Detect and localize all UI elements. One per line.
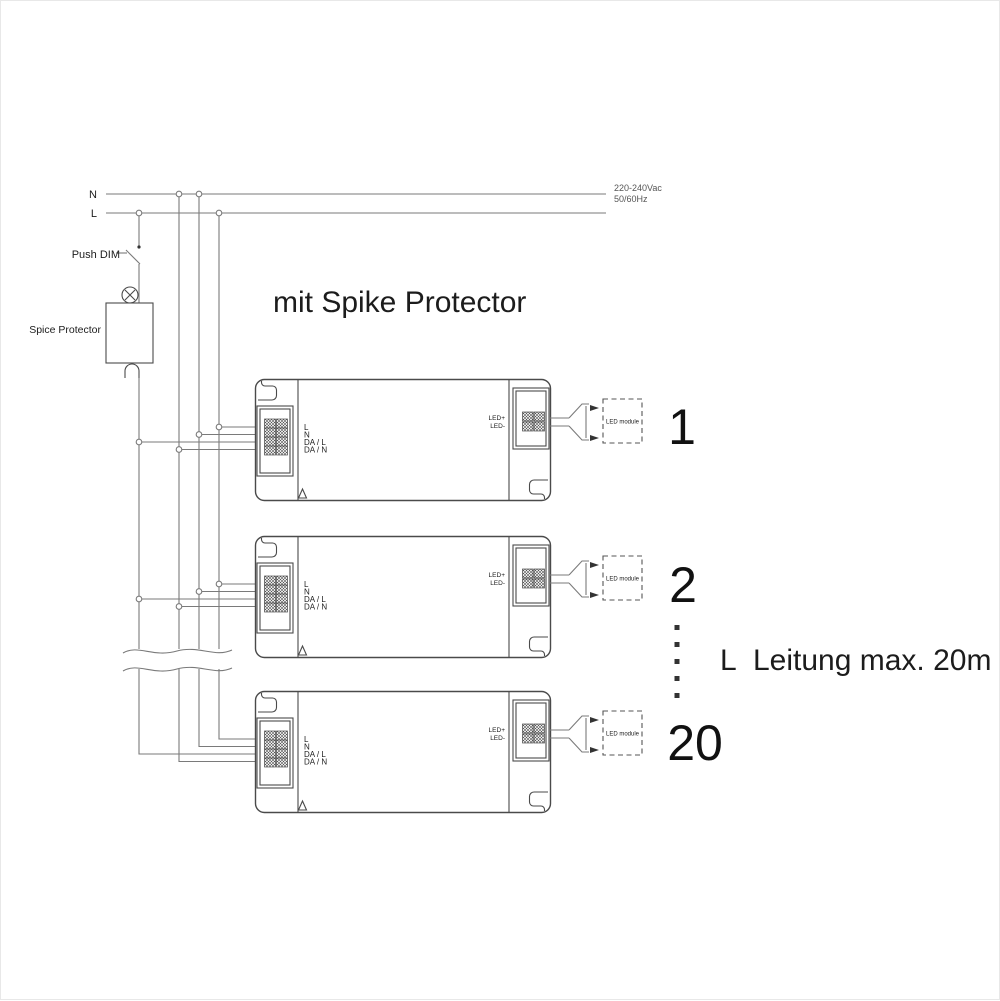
output-label-led-plus: LED+: [489, 415, 506, 422]
output-label-led-plus: LED+: [489, 727, 506, 734]
driver2-taps: [139, 584, 273, 607]
dot: [675, 693, 680, 698]
output-label-led-minus: LED-: [490, 580, 505, 587]
protector-body: [106, 303, 153, 363]
driver-count-20: 20: [667, 715, 723, 771]
junction-dot: [136, 210, 142, 216]
driver1-taps: [139, 427, 273, 450]
supply-lines: [106, 194, 606, 213]
junction-dot: [136, 439, 142, 445]
schematic-page: N L 220-240Vac 50/60Hz: [0, 0, 1000, 1000]
push-dim-label: Push DIM: [72, 249, 120, 261]
junction-dot: [136, 596, 142, 602]
output-wires: [549, 730, 569, 738]
led-driver-1: L N DA / L DA / N LED+ LED- LED module: [256, 380, 643, 501]
led-module-label: LED module: [606, 732, 640, 738]
terminal-label-dan: DA / N: [304, 757, 327, 766]
junction-dot: [176, 604, 182, 610]
protector-bottom-grommet: [125, 364, 139, 378]
output-label-led-plus: LED+: [489, 572, 506, 579]
junction-dot: [216, 424, 222, 430]
terminal-label-dan: DA / N: [304, 602, 327, 611]
cable-length-note: L Leitung max. 20m: [720, 644, 991, 677]
dot: [675, 625, 680, 630]
dot: [675, 642, 680, 647]
led-driver-3: L N DA / L DA / N LED+ LED- LED module: [256, 692, 643, 813]
module-connector: [569, 561, 589, 597]
driver-count-1: 1: [668, 399, 696, 455]
diagram-title: mit Spike Protector: [273, 286, 526, 319]
spike-protector-label: Spice Protector: [29, 324, 101, 336]
junction-dot: [216, 581, 222, 587]
led-module-label: LED module: [606, 420, 640, 426]
junction-dot: [196, 191, 202, 197]
switch-blade: [126, 250, 140, 264]
supply-frequency-label: 50/60Hz: [614, 194, 648, 204]
supply-n-label: N: [89, 189, 97, 201]
line-break-squiggle: [123, 649, 232, 671]
bus-wiring: [123, 191, 273, 761]
connector-arrow-icon: [590, 405, 599, 441]
junction-dot: [176, 191, 182, 197]
junction-dot: [176, 447, 182, 453]
supply-voltage-label: 220-240Vac: [614, 183, 662, 193]
driver-outline: [256, 692, 551, 813]
junction-dot: [216, 210, 222, 216]
push-dim-switch: Push DIM: [72, 245, 141, 264]
output-label-led-minus: LED-: [490, 735, 505, 742]
connector-arrow-icon: [590, 562, 599, 598]
module-connector: [569, 716, 589, 752]
junction-dot: [196, 589, 202, 595]
output-label-led-minus: LED-: [490, 423, 505, 430]
supply-l-label: L: [91, 208, 97, 220]
protector-terminal-cross: [125, 290, 135, 300]
terminal-label-dan: DA / N: [304, 445, 327, 454]
switch-contact-dot: [137, 245, 140, 248]
dali-l-bus: [139, 213, 273, 754]
led-module-label: LED module: [606, 577, 640, 583]
mains-supply: N L 220-240Vac 50/60Hz: [89, 183, 662, 220]
driver-outline: [256, 380, 551, 501]
driver-outline: [256, 537, 551, 658]
led-driver-2: L N DA / L DA / N LED+ LED- LED module: [256, 537, 643, 658]
cable-note-text: Leitung max. 20m: [753, 644, 991, 677]
junction-dot: [196, 432, 202, 438]
dot: [675, 676, 680, 681]
output-wires: [549, 418, 569, 426]
spike-protector: Spice Protector: [29, 287, 153, 378]
driver-count-2: 2: [669, 557, 697, 613]
ellipsis-dots: [675, 625, 680, 698]
connector-arrow-icon: [590, 717, 599, 753]
wiring-diagram: N L 220-240Vac 50/60Hz: [1, 1, 1000, 1001]
dot: [675, 659, 680, 664]
cable-note-prefix: L: [720, 644, 737, 677]
module-connector: [569, 404, 589, 440]
output-wires: [549, 575, 569, 583]
